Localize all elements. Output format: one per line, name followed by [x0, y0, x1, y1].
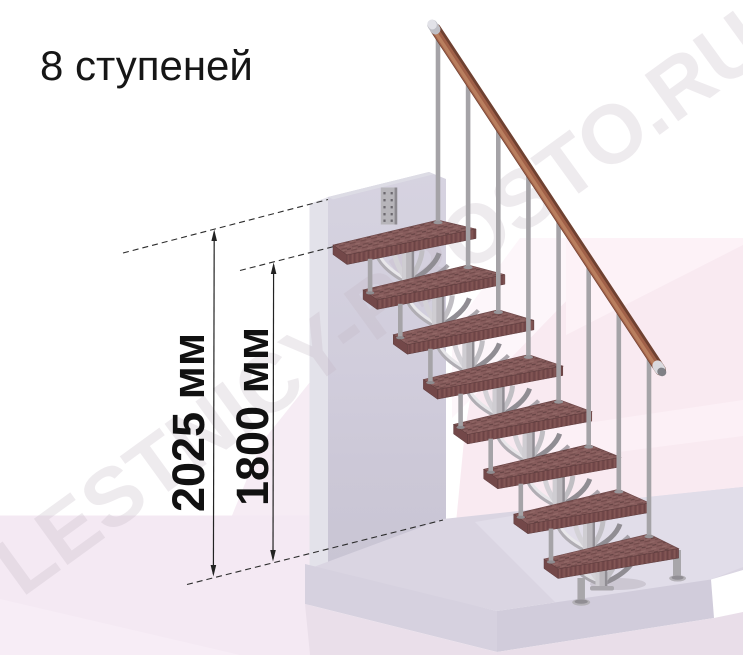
svg-text:1800 мм: 1800 мм: [227, 327, 278, 506]
svg-text:2025 мм: 2025 мм: [163, 333, 214, 512]
svg-text:8 ступеней: 8 ступеней: [40, 42, 253, 89]
